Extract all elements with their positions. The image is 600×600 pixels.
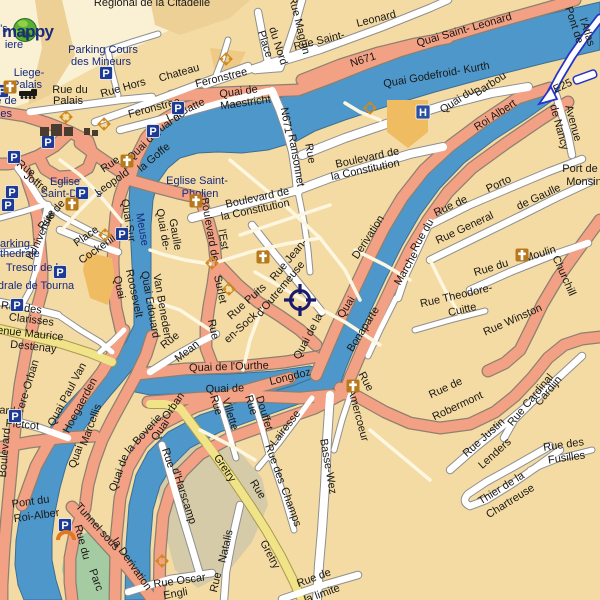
svg-text:Regional de la Citadelle: Regional de la Citadelle bbox=[94, 0, 210, 9]
svg-text:Palais: Palais bbox=[12, 79, 42, 91]
svg-text:les: les bbox=[0, 108, 13, 120]
svg-text:P: P bbox=[56, 267, 63, 279]
svg-text:P: P bbox=[118, 229, 125, 241]
svg-text:P: P bbox=[149, 126, 156, 138]
svg-text:Parking Cours: Parking Cours bbox=[68, 44, 138, 56]
svg-text:Eglise: Eglise bbox=[50, 176, 80, 188]
svg-text:s: s bbox=[96, 188, 102, 200]
svg-text:Eglise Saint-: Eglise Saint- bbox=[166, 175, 228, 187]
svg-text:P: P bbox=[78, 188, 85, 200]
svg-text:P: P bbox=[8, 187, 15, 199]
svg-text:Quai de: Quai de bbox=[205, 382, 244, 395]
svg-text:Port de: Port de bbox=[562, 163, 597, 175]
svg-text:mappy: mappy bbox=[2, 22, 55, 41]
svg-text:thedrale: thedrale bbox=[0, 248, 40, 260]
svg-text:H: H bbox=[419, 107, 427, 119]
svg-text:edrale de Tourna: edrale de Tourna bbox=[0, 280, 75, 292]
svg-text:P: P bbox=[4, 200, 11, 212]
svg-text:P: P bbox=[174, 103, 181, 115]
svg-text:P: P bbox=[102, 68, 109, 80]
svg-text:Liege-: Liege- bbox=[14, 67, 45, 79]
svg-text:P: P bbox=[10, 152, 17, 164]
svg-text:P: P bbox=[11, 411, 18, 423]
svg-text:Palais: Palais bbox=[53, 95, 83, 107]
svg-text:P: P bbox=[13, 300, 20, 312]
svg-text:P: P bbox=[44, 137, 51, 149]
svg-text:Monsin: Monsin bbox=[566, 176, 600, 188]
